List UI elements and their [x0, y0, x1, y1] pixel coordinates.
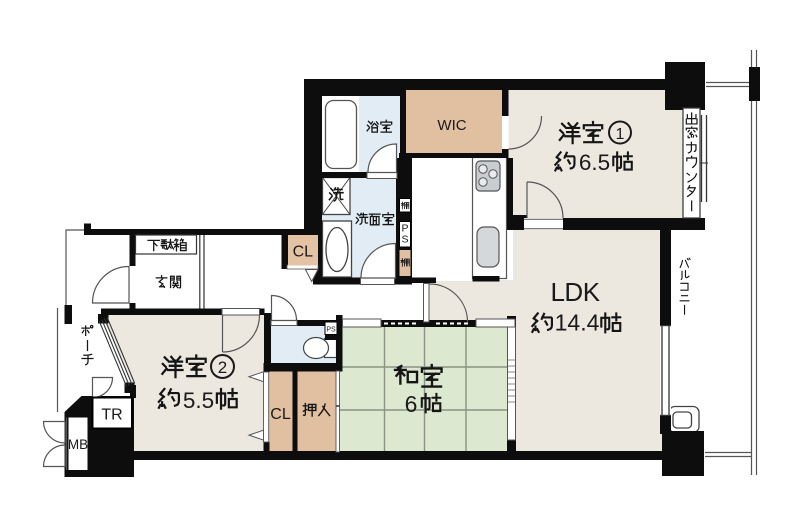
- svg-text:6.5: 6.5: [579, 150, 610, 175]
- svg-text:S: S: [401, 234, 408, 246]
- svg-text:TR: TR: [101, 407, 122, 424]
- svg-text:1: 1: [616, 126, 625, 143]
- svg-text:MB: MB: [68, 437, 88, 452]
- svg-text:14.4: 14.4: [555, 310, 600, 336]
- svg-text:2: 2: [218, 358, 227, 377]
- svg-text:PS: PS: [326, 327, 336, 334]
- svg-text:5.5: 5.5: [183, 388, 214, 413]
- svg-text:CL: CL: [270, 406, 291, 423]
- svg-text:CL: CL: [293, 244, 314, 261]
- svg-text:LDK: LDK: [550, 277, 600, 307]
- svg-text:WIC: WIC: [437, 117, 466, 134]
- svg-text:6: 6: [405, 391, 418, 417]
